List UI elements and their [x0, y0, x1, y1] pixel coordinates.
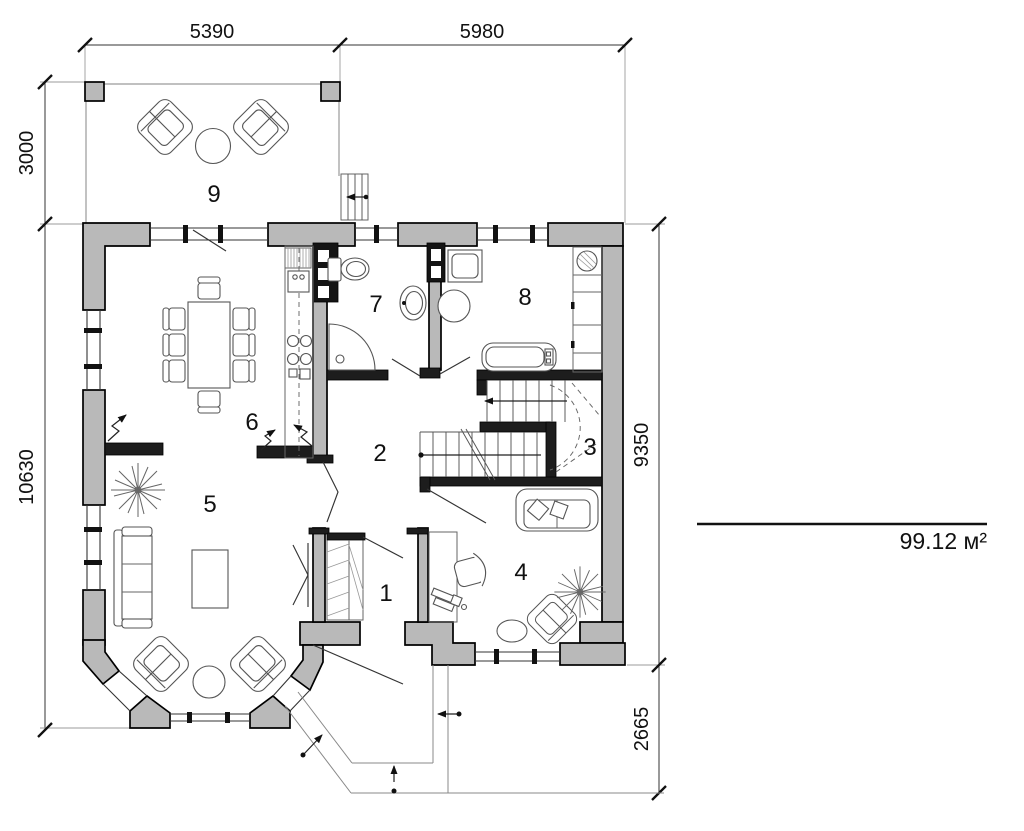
- water-heater: [438, 290, 470, 322]
- chair: [233, 360, 255, 382]
- plant-icon: [111, 463, 165, 517]
- room-number-1: 1: [379, 580, 392, 607]
- chair: [233, 308, 255, 330]
- sofa-room5: [114, 527, 152, 628]
- floor-plan: 5390 5980 3000 10630 9350 2665: [0, 0, 1024, 831]
- living-room5: [111, 463, 289, 698]
- shower-unit: [448, 250, 482, 282]
- plant-icon: [554, 566, 605, 617]
- sofa-room4: [516, 489, 598, 531]
- chair: [163, 308, 185, 330]
- toilet: [328, 258, 369, 281]
- terrace-stair: [341, 174, 368, 220]
- desk-items: [431, 588, 466, 611]
- coffee-table: [192, 550, 228, 608]
- bathtub: [482, 343, 556, 371]
- ottoman: [497, 620, 527, 642]
- floor-plan-page: 5390 5980 3000 10630 9350 2665: [0, 0, 1024, 831]
- door-leaf-room5: [293, 543, 308, 607]
- chair: [163, 334, 185, 356]
- kitchen-sink: [285, 248, 311, 292]
- chair: [198, 277, 220, 299]
- dimension-annotations: 5390 5980 3000 10630 9350 2665: [16, 21, 666, 800]
- corner-shower: [329, 324, 375, 370]
- desk-chair: [452, 551, 489, 591]
- dining-set: [163, 277, 255, 413]
- armchair: [524, 591, 580, 647]
- room-number-3: 3: [583, 434, 596, 461]
- armchair: [134, 96, 196, 158]
- terrace-post: [85, 82, 104, 101]
- opening-arrow: [108, 415, 126, 441]
- room-number-4: 4: [514, 559, 527, 586]
- opening-arrow: [294, 425, 312, 446]
- room-number-5: 5: [203, 491, 216, 518]
- chair: [198, 391, 220, 413]
- chair: [163, 360, 185, 382]
- room-number-6: 6: [245, 409, 258, 436]
- kitchen-unit: [285, 246, 313, 458]
- chair: [233, 334, 255, 356]
- area-total: 99.12 м²: [697, 524, 987, 554]
- dim-left-terrace: 3000: [16, 131, 38, 176]
- bay-pier: [83, 640, 119, 684]
- terrace-post: [321, 82, 340, 101]
- dim-left-house: 10630: [16, 449, 38, 505]
- room-number-2: 2: [373, 440, 386, 467]
- armchair: [227, 633, 289, 695]
- stove: [288, 336, 312, 380]
- dim-right-house: 9350: [631, 423, 653, 468]
- armchair: [230, 96, 292, 158]
- room-number-7: 7: [369, 291, 382, 318]
- wardrobe: [327, 533, 365, 620]
- bay-pier: [291, 645, 323, 690]
- dim-top-left: 5390: [190, 21, 235, 43]
- laundry-shelves: [571, 247, 602, 372]
- washing-machine: [577, 251, 597, 271]
- round-table: [196, 129, 231, 164]
- bay-pier: [250, 696, 290, 728]
- entrance-porch: [285, 665, 664, 794]
- terrace-furniture: [134, 96, 292, 164]
- armchair: [130, 633, 192, 695]
- room-number-8: 8: [518, 284, 531, 311]
- round-table: [193, 666, 225, 698]
- dim-right-porch: 2665: [631, 707, 653, 752]
- bay-pier: [130, 696, 170, 728]
- washbasin: [400, 286, 426, 320]
- dim-top-right: 5980: [460, 21, 505, 43]
- area-label: 99.12 м²: [900, 528, 988, 554]
- room-number-9: 9: [207, 181, 220, 208]
- dining-table: [188, 302, 230, 388]
